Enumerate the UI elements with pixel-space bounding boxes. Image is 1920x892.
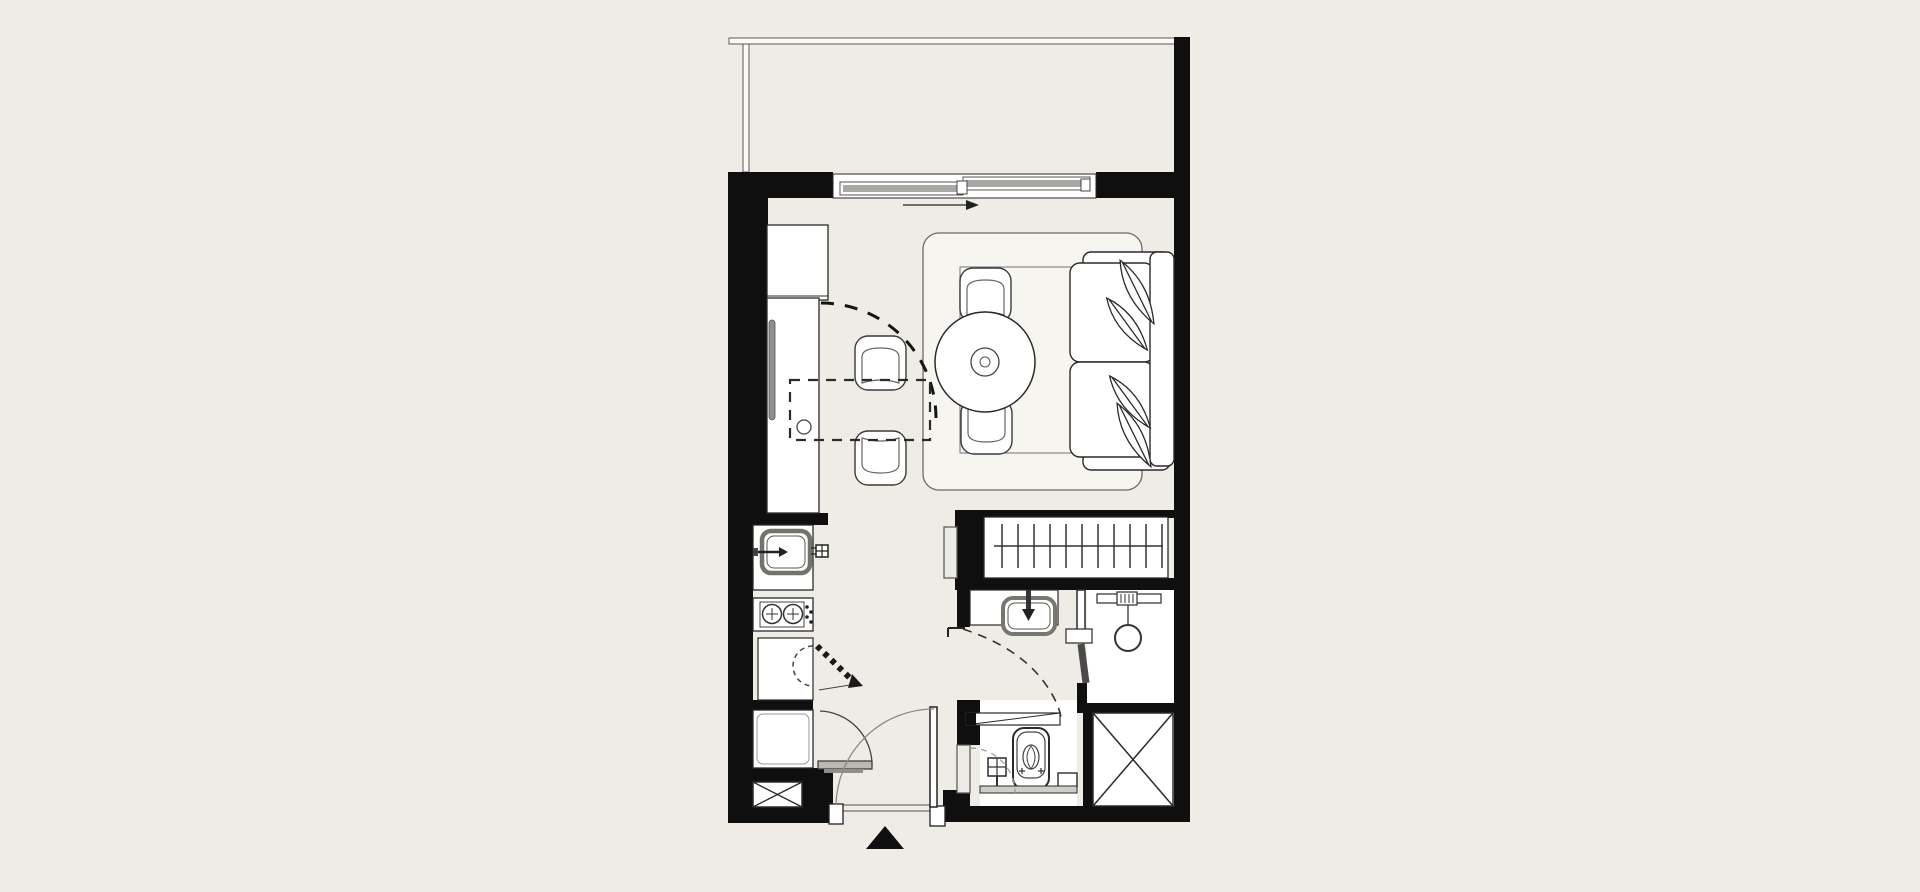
window-panel-left-glass — [843, 185, 960, 192]
wall-left-upper — [728, 198, 768, 513]
kitchen-counter-handle — [769, 320, 775, 420]
stove-knob-1 — [805, 605, 809, 609]
wall-closet-bottom — [955, 578, 1174, 590]
wc-shelf-dark-end — [966, 713, 976, 725]
wall-bottom-right-band — [940, 806, 1183, 822]
window-connector-left — [957, 181, 967, 194]
round-table-inner-ring — [971, 348, 999, 376]
window-slide-arrow-head — [966, 200, 979, 210]
wc-threshold — [980, 786, 1077, 793]
wall-closet-pier — [955, 510, 984, 578]
wall-kitchen-divider — [753, 513, 828, 525]
shower-drain — [1115, 625, 1141, 651]
wc-bin — [1058, 773, 1077, 787]
wall-bath-left — [957, 590, 970, 627]
wall-washer-separator — [753, 700, 813, 710]
balcony-rail-left — [743, 44, 749, 172]
kitchen-fridge — [767, 225, 828, 300]
washing-machine — [753, 710, 813, 768]
shower-partition — [1077, 590, 1085, 630]
window-panel-right-glass — [966, 180, 1087, 187]
entry-door-leaf — [930, 707, 937, 807]
balcony-rail-top — [729, 38, 1175, 44]
chair-outer-left-top — [855, 336, 906, 390]
window-connector-right — [1081, 179, 1090, 191]
entry-jamb-right — [930, 806, 945, 826]
base-cabinet — [758, 638, 813, 700]
entry-threshold-lines — [833, 805, 937, 811]
kitchen-faucet-base — [753, 548, 758, 556]
sofa-back — [1150, 252, 1174, 466]
stove-knob-3 — [805, 615, 809, 619]
wall-stub-top-left — [728, 172, 833, 198]
shower-head-box — [1117, 592, 1137, 605]
basin-faucet-bar — [1026, 590, 1031, 609]
entry-jamb-left — [829, 804, 843, 824]
pullout-hatched-band — [817, 646, 853, 681]
wc-door-leaf — [957, 745, 970, 793]
chair-outer-left-bottom — [855, 431, 906, 485]
wall-shaft-top — [1083, 703, 1183, 713]
entry-door-swing-arc — [836, 709, 934, 805]
floor-plan-page — [0, 0, 1920, 892]
bath-door-leaf — [944, 527, 957, 578]
shower-door-top — [1066, 629, 1092, 643]
floor-plan — [0, 0, 1920, 892]
stove-knob-2 — [809, 610, 813, 614]
wall-shaft-left — [1083, 713, 1093, 808]
entry-marker-triangle — [866, 826, 904, 849]
wall-stub-top-right — [1096, 172, 1174, 198]
bath-door-pivot-mark — [948, 628, 965, 637]
stove-knob-4 — [809, 620, 813, 624]
wardrobe-box — [984, 517, 1168, 578]
shower-door-bar — [1081, 644, 1086, 683]
